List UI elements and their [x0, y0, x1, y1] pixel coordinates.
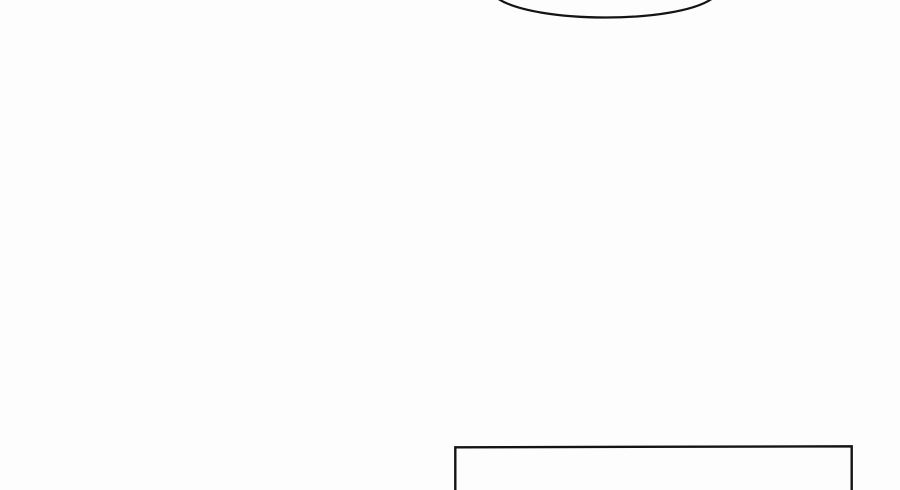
comic-page-canvas: [0, 0, 900, 490]
paper-background: [0, 0, 900, 490]
comic-page: [0, 0, 900, 490]
